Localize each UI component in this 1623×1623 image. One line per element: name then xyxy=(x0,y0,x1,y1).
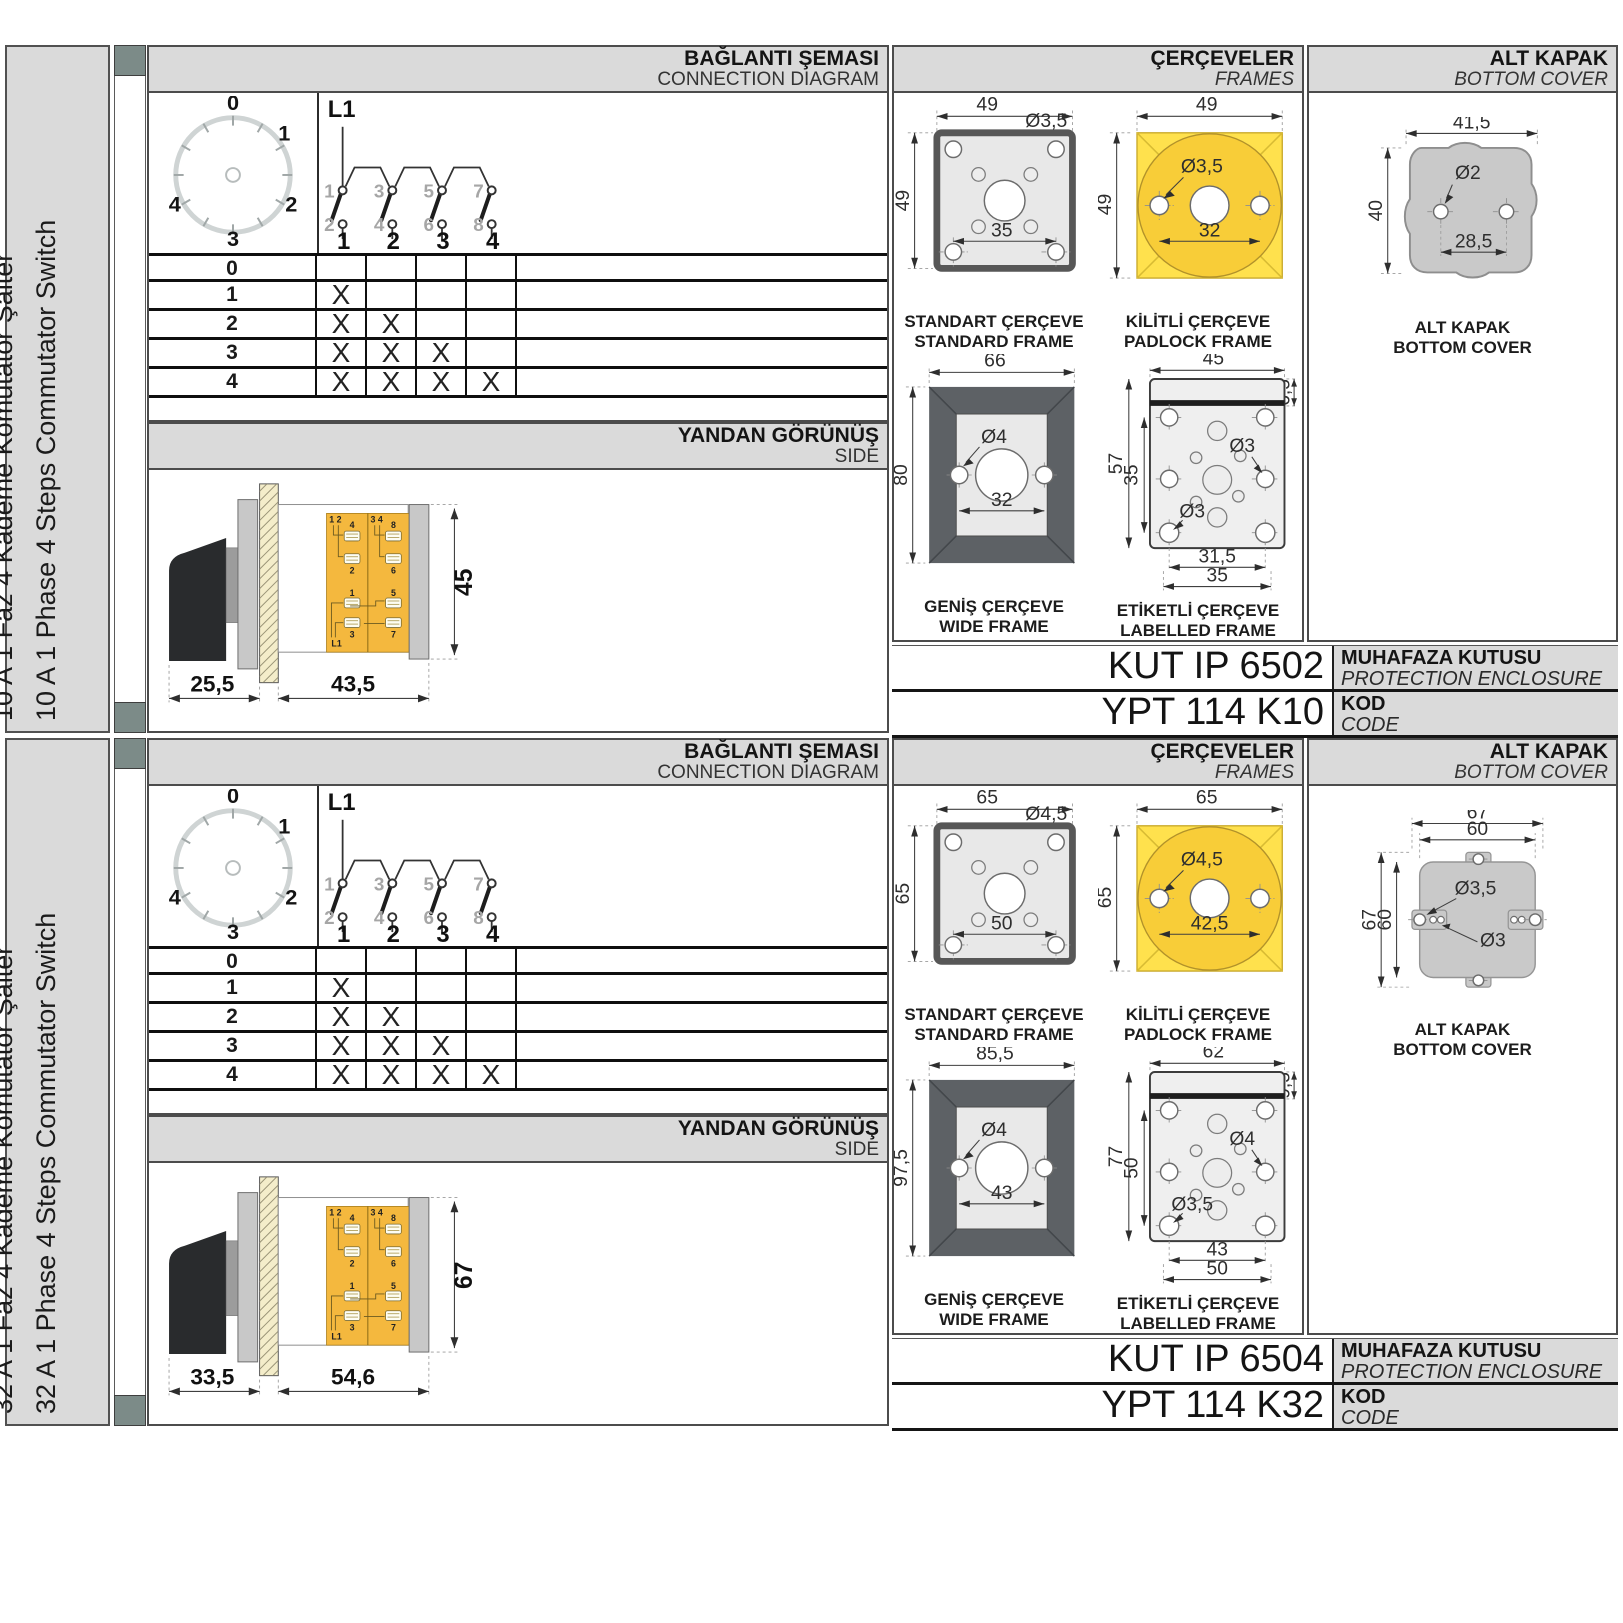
terminal-label: 4 xyxy=(374,907,385,928)
header-title-en: SIDE xyxy=(835,1140,879,1160)
connection-column: BAĞLANTI ŞEMASI CONNECTION DIAGRAM xyxy=(147,45,889,733)
dim-hole-tab: Ø3,5 xyxy=(1454,879,1496,900)
product-block: 32 A 1 Faz 4 Kademe Komütatör Şalter 32 … xyxy=(5,738,1618,1426)
code-label-en: CODE xyxy=(1341,715,1611,735)
end-cap xyxy=(409,505,429,660)
labelled-frame-drawing: 62 9,5 77 xyxy=(1094,1047,1302,1293)
product-sidebar: 10 A 1 Faz 4 Kademe Komütatör Şalter 10 … xyxy=(5,45,110,733)
dim-hole: Ø3,5 xyxy=(1025,110,1067,132)
caption-tr: ETİKETLİ ÇERÇEVE xyxy=(1117,601,1279,621)
padlock-frame-caption: KİLİTLİ ÇERÇEVE PADLOCK FRAME xyxy=(1124,1005,1272,1044)
step-label: 1 xyxy=(149,282,317,308)
table-cell: X xyxy=(467,1062,517,1088)
enclosure-label-tr: MUHAFAZA KUTUSU xyxy=(1341,648,1611,668)
product-codes: KUT IP 6502 MUHAFAZA KUTUSU PROTECTION E… xyxy=(892,645,1618,738)
binder-spine xyxy=(114,738,146,1426)
caption-en: BOTTOM COVER xyxy=(1393,1040,1532,1060)
output-label: 4 xyxy=(486,228,500,250)
caption-en: PADLOCK FRAME xyxy=(1124,1025,1272,1045)
dim-handle-length: 33,5 xyxy=(190,1365,234,1390)
terminal-pair-left: 1 2 xyxy=(329,1207,341,1217)
dim-height-inner: 60 xyxy=(1374,909,1395,930)
terminal-label: 7 xyxy=(473,180,484,201)
terminal-label: 1 xyxy=(324,180,335,201)
table-cell xyxy=(467,1033,517,1059)
dial-label-3: 3 xyxy=(227,919,239,943)
step-label: 4 xyxy=(149,369,317,395)
enclosure-code-row: KUT IP 6504 MUHAFAZA KUTUSU PROTECTION E… xyxy=(892,1338,1618,1385)
spine-block-top xyxy=(114,45,146,76)
table-cell: X xyxy=(367,311,417,337)
table-row: 0 xyxy=(149,946,887,975)
lug-label: 5 xyxy=(391,1281,396,1291)
caption-en: LABELLED FRAME xyxy=(1117,1314,1279,1334)
dim-hole: Ø4,5 xyxy=(1025,803,1067,825)
caption-en: WIDE FRAME xyxy=(924,617,1064,637)
dial-label-0: 0 xyxy=(227,96,239,115)
lug-input-label: L1 xyxy=(331,638,341,648)
terminal-pair-right: 3 4 xyxy=(371,514,383,524)
standard-frame-drawing: 49 Ø3,5 49 xyxy=(894,96,1094,311)
bottom-cover-caption: ALT KAPAK BOTTOM COVER xyxy=(1393,318,1532,357)
right-section: ÇERÇEVELER FRAMES 65 Ø4,5 xyxy=(892,738,1618,1426)
dim-hole-spacing: 43 xyxy=(991,1182,1013,1204)
side-view-header: YANDAN GÖRÜNÜŞ SIDE xyxy=(147,1115,889,1163)
terminal-label: 2 xyxy=(324,214,335,235)
dim-hole-left: Ø3 xyxy=(1179,501,1205,522)
product-code: YPT 114 K10 xyxy=(892,692,1332,735)
table-cell: X xyxy=(317,369,367,395)
dim-spacing-inner: 43 xyxy=(1207,1240,1228,1261)
product-block: 10 A 1 Faz 4 Kademe Komütatör Şalter 10 … xyxy=(5,45,1618,733)
table-row: 2 X X xyxy=(149,1004,887,1033)
lug-label: 4 xyxy=(350,1213,355,1223)
frames-column: ÇERÇEVELER FRAMES 65 Ø4,5 xyxy=(892,738,1304,1335)
side-view-header: YANDAN GÖRÜNÜŞ SIDE xyxy=(147,422,889,470)
terminal-label: 2 xyxy=(324,907,335,928)
caption-tr: STANDART ÇERÇEVE xyxy=(904,312,1083,332)
dim-width: 65 xyxy=(1196,789,1218,809)
dial-label-4: 4 xyxy=(169,192,181,217)
step-label: 1 xyxy=(149,975,317,1001)
bottom-cover-figure: 67 60 67 60 xyxy=(1307,786,1618,1335)
rotary-dial-diagram: 0 1 2 3 4 xyxy=(151,96,315,250)
lug-label: 4 xyxy=(350,520,355,530)
frames-header: ÇERÇEVELER FRAMES xyxy=(892,45,1304,93)
table-cell xyxy=(417,282,467,308)
switching-table: 0 1 X xyxy=(149,946,887,1091)
wide-frame-figure: 66 80 xyxy=(894,351,1094,640)
table-cell xyxy=(367,975,417,1001)
frames-header: ÇERÇEVELER FRAMES xyxy=(892,738,1304,786)
dim-hole: Ø3,5 xyxy=(1181,156,1223,178)
bottom-cover-header: ALT KAPAK BOTTOM COVER xyxy=(1307,45,1618,93)
circuit-schematic-figure: L1 xyxy=(319,786,887,946)
table-cell xyxy=(467,975,517,1001)
dim-hole-spacing: 32 xyxy=(991,489,1013,511)
header-title-tr: BAĞLANTI ŞEMASI xyxy=(684,741,879,763)
dim-spacing-outer: 35 xyxy=(1207,566,1228,587)
frames-grid: 65 Ø4,5 65 xyxy=(892,786,1304,1335)
header-title-en: SIDE xyxy=(835,447,879,467)
caption-tr: KİLİTLİ ÇERÇEVE xyxy=(1124,312,1272,332)
dial-label-3: 3 xyxy=(227,226,239,250)
table-cell: X xyxy=(367,340,417,366)
dim-height: 65 xyxy=(894,883,914,905)
caption-tr: KİLİTLİ ÇERÇEVE xyxy=(1124,1005,1272,1025)
wide-frame-drawing: 85,5 97,5 xyxy=(894,1047,1094,1289)
table-cell xyxy=(417,949,467,972)
step-label: 2 xyxy=(149,1004,317,1030)
output-label: 1 xyxy=(337,921,350,943)
dim-height: 67 xyxy=(451,1262,478,1289)
table-row: 2 X X xyxy=(149,311,887,340)
circuit-schematic-figure: L1 xyxy=(319,93,887,253)
table-cell: X xyxy=(367,1033,417,1059)
header-title-tr: YANDAN GÖRÜNÜŞ xyxy=(678,1118,879,1140)
enclosure-label-en: PROTECTION ENCLOSURE xyxy=(1341,669,1611,689)
code-label: KOD CODE xyxy=(1332,692,1618,735)
labelled-frame-drawing: 45 6,5 57 xyxy=(1094,354,1302,600)
labelled-frame-caption: ETİKETLİ ÇERÇEVE LABELLED FRAME xyxy=(1117,1294,1279,1333)
caption-tr: GENİŞ ÇERÇEVE xyxy=(924,597,1064,617)
header-title-en: CONNECTION DIAGRAM xyxy=(657,70,879,90)
output-label: 3 xyxy=(436,921,449,943)
table-cell xyxy=(467,256,517,279)
bottom-cover-header: ALT KAPAK BOTTOM COVER xyxy=(1307,738,1618,786)
dial-label-4: 4 xyxy=(169,885,181,910)
header-title-tr: YANDAN GÖRÜNÜŞ xyxy=(678,425,879,447)
table-row: 4 X X X X xyxy=(149,369,887,398)
table-cell xyxy=(417,311,467,337)
dim-spacing-inner: 31,5 xyxy=(1199,547,1236,568)
table-cell xyxy=(367,282,417,308)
table-cell: X xyxy=(367,369,417,395)
dial-label-2: 2 xyxy=(285,192,297,217)
terminal-label: 8 xyxy=(473,907,484,928)
lug-label: 3 xyxy=(350,629,355,639)
caption-en: STANDARD FRAME xyxy=(904,1025,1083,1045)
code-label: KOD CODE xyxy=(1332,1385,1618,1428)
bottom-cover-blob-svg: 41,5 40 Ø2 xyxy=(1352,117,1574,314)
step-label: 0 xyxy=(149,949,317,972)
dial-label-1: 1 xyxy=(278,120,290,145)
header-title-en: BOTTOM COVER xyxy=(1454,763,1608,783)
binder-spine xyxy=(114,45,146,733)
spine-block-bottom xyxy=(114,702,146,733)
terminal-label: 6 xyxy=(424,907,435,928)
lug-label: 8 xyxy=(391,1213,396,1223)
table-cell: X xyxy=(417,369,467,395)
dim-body-length: 54,6 xyxy=(331,1365,375,1390)
terminal-label: 8 xyxy=(473,214,484,235)
padlock-frame-figure: 49 49 xyxy=(1094,93,1302,351)
rotary-dial-figure: 0 1 2 3 4 xyxy=(149,93,319,253)
output-label: 1 xyxy=(337,228,350,250)
terminal-pair-left: 1 2 xyxy=(329,514,341,524)
standard-frame-figure: 49 Ø3,5 49 xyxy=(894,93,1094,351)
product-code-row: YPT 114 K10 KOD CODE xyxy=(892,692,1618,738)
table-cell: X xyxy=(317,340,367,366)
switching-table: 0 1 X xyxy=(149,253,887,398)
side-view-drawing: 1 2 3 4 4 2 1 3 8 6 5 7 L1 33,5 xyxy=(157,1169,497,1417)
table-row: 1 X xyxy=(149,975,887,1004)
table-row: 3 X X X xyxy=(149,1033,887,1062)
step-label: 4 xyxy=(149,1062,317,1088)
table-cell: X xyxy=(467,369,517,395)
product-list: 10 A 1 Faz 4 Kademe Komütatör Şalter 10 … xyxy=(5,45,1623,1426)
wide-frame-caption: GENİŞ ÇERÇEVE WIDE FRAME xyxy=(924,1290,1064,1329)
dim-width: 66 xyxy=(984,354,1006,372)
dim-width: 45 xyxy=(1203,354,1224,370)
dim-width: 65 xyxy=(976,789,998,809)
switch-handle xyxy=(169,1231,226,1354)
table-cell xyxy=(317,256,367,279)
dial-label-2: 2 xyxy=(285,885,297,910)
terminal-label: 5 xyxy=(424,873,435,894)
standard-frame-drawing: 65 Ø4,5 65 xyxy=(894,789,1094,1004)
side-view-figure: 1 2 3 4 4 2 1 3 8 6 5 7 L1 25,5 xyxy=(147,470,889,733)
labelled-frame-figure: 62 9,5 77 xyxy=(1094,1044,1302,1333)
table-row: 0 xyxy=(149,253,887,282)
table-cell xyxy=(367,949,417,972)
caption-tr: GENİŞ ÇERÇEVE xyxy=(924,1290,1064,1310)
front-plate xyxy=(238,1193,258,1362)
wide-frame-figure: 85,5 97,5 xyxy=(894,1044,1094,1333)
dim-width: 85,5 xyxy=(976,1047,1014,1065)
padlock-frame-figure: 65 65 xyxy=(1094,786,1302,1044)
padlock-frame-drawing: 49 49 xyxy=(1098,96,1298,311)
table-cell: X xyxy=(367,1062,417,1088)
table-row: 3 X X X xyxy=(149,340,887,369)
header-title-en: FRAMES xyxy=(1215,763,1294,783)
output-label: 2 xyxy=(387,228,400,250)
table-cell xyxy=(367,256,417,279)
dim-height: 65 xyxy=(1098,887,1116,909)
header-title-tr: ALT KAPAK xyxy=(1490,741,1608,763)
caption-en: PADLOCK FRAME xyxy=(1124,332,1272,352)
step-label: 3 xyxy=(149,340,317,366)
circuit-schematic: L1 xyxy=(319,93,877,250)
spine-block-top xyxy=(114,738,146,769)
header-title-tr: BAĞLANTI ŞEMASI xyxy=(684,48,879,70)
lug-label: 5 xyxy=(391,588,396,598)
output-label: 4 xyxy=(486,921,500,943)
connection-diagram: 0 1 2 3 4 L1 xyxy=(147,786,889,1115)
bottom-cover-column: ALT KAPAK BOTTOM COVER 41,5 xyxy=(1307,45,1618,642)
switch-handle xyxy=(169,538,226,661)
spacer xyxy=(149,398,887,420)
table-cell: X xyxy=(417,1062,467,1088)
code-label-tr: KOD xyxy=(1341,694,1611,714)
header-title-tr: ÇERÇEVELER xyxy=(1150,741,1294,763)
product-main: BAĞLANTI ŞEMASI CONNECTION DIAGRAM xyxy=(147,45,1618,733)
table-cell xyxy=(417,975,467,1001)
dim-hole-spacing: 50 xyxy=(991,912,1013,934)
circuit-schematic: L1 xyxy=(319,786,877,943)
dim-width: 62 xyxy=(1203,1047,1224,1063)
step-label: 3 xyxy=(149,1033,317,1059)
table-cell xyxy=(467,282,517,308)
lug-label: 6 xyxy=(391,565,396,575)
lug-label: 8 xyxy=(391,520,396,530)
table-cell: X xyxy=(367,1004,417,1030)
padlock-frame-drawing: 65 65 xyxy=(1098,789,1298,1004)
side-view-drawing: 1 2 3 4 4 2 1 3 8 6 5 7 L1 25,5 xyxy=(157,476,497,724)
step-label: 0 xyxy=(149,256,317,279)
right-section: ÇERÇEVELER FRAMES 49 Ø3,5 xyxy=(892,45,1618,733)
table-cell xyxy=(467,1004,517,1030)
caption-en: STANDARD FRAME xyxy=(904,332,1083,352)
schematic-input-label: L1 xyxy=(328,789,356,816)
frames-grid: 49 Ø3,5 49 xyxy=(892,93,1304,642)
step-label: 2 xyxy=(149,311,317,337)
connection-diagram-header: BAĞLANTI ŞEMASI CONNECTION DIAGRAM xyxy=(147,738,889,786)
spine-block-bottom xyxy=(114,1395,146,1426)
header-title-en: FRAMES xyxy=(1215,70,1294,90)
table-row: 1 X xyxy=(149,282,887,311)
header-title-tr: ALT KAPAK xyxy=(1490,48,1608,70)
bottom-cover-drawing-tabs: 67 60 67 60 xyxy=(1352,810,1574,1016)
product-sidebar: 32 A 1 Faz 4 Kademe Komütatör Şalter 32 … xyxy=(5,738,110,1426)
table-cell xyxy=(417,1004,467,1030)
table-cell: X xyxy=(317,311,367,337)
labelled-frame-figure: 45 6,5 57 xyxy=(1094,351,1302,640)
caption-tr: STANDART ÇERÇEVE xyxy=(904,1005,1083,1025)
standard-frame-caption: STANDART ÇERÇEVE STANDARD FRAME xyxy=(904,1005,1083,1044)
dim-width: 49 xyxy=(976,96,998,116)
dim-hole-left: Ø3,5 xyxy=(1171,1194,1213,1215)
dial-label-1: 1 xyxy=(278,813,290,838)
table-cell: X xyxy=(317,1033,367,1059)
terminal-label: 4 xyxy=(374,214,385,235)
bottom-cover-drawing-blob: 41,5 40 Ø2 xyxy=(1352,117,1574,314)
caption-en: LABELLED FRAME xyxy=(1117,621,1279,641)
lug-label: 1 xyxy=(350,588,355,598)
wide-frame-caption: GENİŞ ÇERÇEVE WIDE FRAME xyxy=(924,597,1064,636)
dim-width: 41,5 xyxy=(1452,117,1490,134)
lug-label: 2 xyxy=(350,565,355,575)
terminal-label: 5 xyxy=(424,180,435,201)
table-cell xyxy=(467,949,517,972)
terminal-label: 1 xyxy=(324,873,335,894)
connection-diagram: 0 1 2 3 4 L1 xyxy=(147,93,889,422)
product-title-english: 10 A 1 Phase 4 Steps Commutator Switch xyxy=(31,220,62,721)
table-cell: X xyxy=(317,975,367,1001)
dim-width: 49 xyxy=(1196,96,1218,116)
dim-width-inner: 60 xyxy=(1466,819,1487,840)
caption-tr: ALT KAPAK xyxy=(1393,1020,1532,1040)
header-title-en: CONNECTION DIAGRAM xyxy=(657,763,879,783)
bottom-cover-figure: 41,5 40 Ø2 xyxy=(1307,93,1618,642)
dim-hole-spacing: 32 xyxy=(1199,219,1221,241)
end-cap xyxy=(409,1198,429,1353)
lug-label: 3 xyxy=(350,1322,355,1332)
connection-diagram-header: BAĞLANTI ŞEMASI CONNECTION DIAGRAM xyxy=(147,45,889,93)
output-label: 2 xyxy=(387,921,400,943)
caption-tr: ALT KAPAK xyxy=(1393,318,1532,338)
table-cell: X xyxy=(317,282,367,308)
table-cell: X xyxy=(417,1033,467,1059)
caption-tr: ETİKETLİ ÇERÇEVE xyxy=(1117,1294,1279,1314)
table-cell xyxy=(417,256,467,279)
caption-en: WIDE FRAME xyxy=(924,1310,1064,1330)
caption-en: BOTTOM COVER xyxy=(1393,338,1532,358)
dim-spacing-outer: 50 xyxy=(1207,1259,1228,1280)
dim-hole-right: Ø4 xyxy=(1229,1129,1255,1150)
front-plate xyxy=(238,500,258,669)
product-codes: KUT IP 6504 MUHAFAZA KUTUSU PROTECTION E… xyxy=(892,1338,1618,1431)
enclosure-label: MUHAFAZA KUTUSU PROTECTION ENCLOSURE xyxy=(1332,1339,1618,1382)
dim-height: 80 xyxy=(894,464,912,486)
dim-height: 49 xyxy=(894,190,914,212)
enclosure-label: MUHAFAZA KUTUSU PROTECTION ENCLOSURE xyxy=(1332,646,1618,689)
lug-label: 1 xyxy=(350,1281,355,1291)
table-cell xyxy=(467,311,517,337)
terminal-label: 3 xyxy=(374,180,384,201)
product-title-turkish: 32 A 1 Faz 4 Kademe Komütatör Şalter xyxy=(0,946,19,1414)
dim-height: 97,5 xyxy=(894,1149,912,1187)
lug-input-label: L1 xyxy=(331,1331,341,1341)
enclosure-code: KUT IP 6504 xyxy=(892,1339,1332,1382)
header-title-tr: ÇERÇEVELER xyxy=(1150,48,1294,70)
connection-column: BAĞLANTI ŞEMASI CONNECTION DIAGRAM xyxy=(147,738,889,1426)
dim-hole-spacing: 42,5 xyxy=(1191,912,1229,934)
table-row: 4 X X X X xyxy=(149,1062,887,1091)
table-cell: X xyxy=(317,1004,367,1030)
terminal-label: 3 xyxy=(374,873,384,894)
dim-hole-height: 50 xyxy=(1121,1157,1142,1178)
dim-hole: Ø4 xyxy=(981,426,1007,448)
product-code: YPT 114 K32 xyxy=(892,1385,1332,1428)
padlock-frame-caption: KİLİTLİ ÇERÇEVE PADLOCK FRAME xyxy=(1124,312,1272,351)
table-cell: X xyxy=(417,340,467,366)
labelled-frame-caption: ETİKETLİ ÇERÇEVE LABELLED FRAME xyxy=(1117,601,1279,640)
standard-frame-figure: 65 Ø4,5 65 xyxy=(894,786,1094,1044)
lug-label: 2 xyxy=(350,1258,355,1268)
enclosure-code: KUT IP 6502 xyxy=(892,646,1332,689)
spacer xyxy=(149,1091,887,1113)
lug-label: 6 xyxy=(391,1258,396,1268)
lug-label: 7 xyxy=(391,1322,396,1332)
dim-body-length: 43,5 xyxy=(331,672,375,697)
code-label-en: CODE xyxy=(1341,1408,1611,1428)
wide-frame-drawing: 66 80 xyxy=(894,354,1094,596)
code-label-tr: KOD xyxy=(1341,1387,1611,1407)
header-title-en: BOTTOM COVER xyxy=(1454,70,1608,90)
table-cell xyxy=(467,340,517,366)
lug-label: 7 xyxy=(391,629,396,639)
product-code-row: YPT 114 K32 KOD CODE xyxy=(892,1385,1618,1431)
bottom-cover-column: ALT KAPAK BOTTOM COVER 67 xyxy=(1307,738,1618,1335)
schematic-input-label: L1 xyxy=(328,96,356,123)
table-cell: X xyxy=(317,1062,367,1088)
side-view-figure: 1 2 3 4 4 2 1 3 8 6 5 7 L1 33,5 xyxy=(147,1163,889,1426)
dim-height: 45 xyxy=(451,569,478,596)
rotary-dial-figure: 0 1 2 3 4 xyxy=(149,786,319,946)
dim-hole-small: Ø3 xyxy=(1479,931,1505,952)
output-label: 3 xyxy=(436,228,449,250)
product-main: BAĞLANTI ŞEMASI CONNECTION DIAGRAM xyxy=(147,738,1618,1426)
product-title-turkish: 10 A 1 Faz 4 Kademe Komütatör Şalter xyxy=(0,253,19,721)
dim-handle-length: 25,5 xyxy=(190,672,234,697)
dim-hole: Ø2 xyxy=(1454,163,1480,184)
rotary-dial-diagram: 0 1 2 3 4 xyxy=(151,789,315,943)
terminal-label: 7 xyxy=(473,873,484,894)
dim-hole-right: Ø3 xyxy=(1229,436,1255,457)
enclosure-label-en: PROTECTION ENCLOSURE xyxy=(1341,1362,1611,1382)
product-title-english: 32 A 1 Phase 4 Steps Commutator Switch xyxy=(31,913,62,1414)
